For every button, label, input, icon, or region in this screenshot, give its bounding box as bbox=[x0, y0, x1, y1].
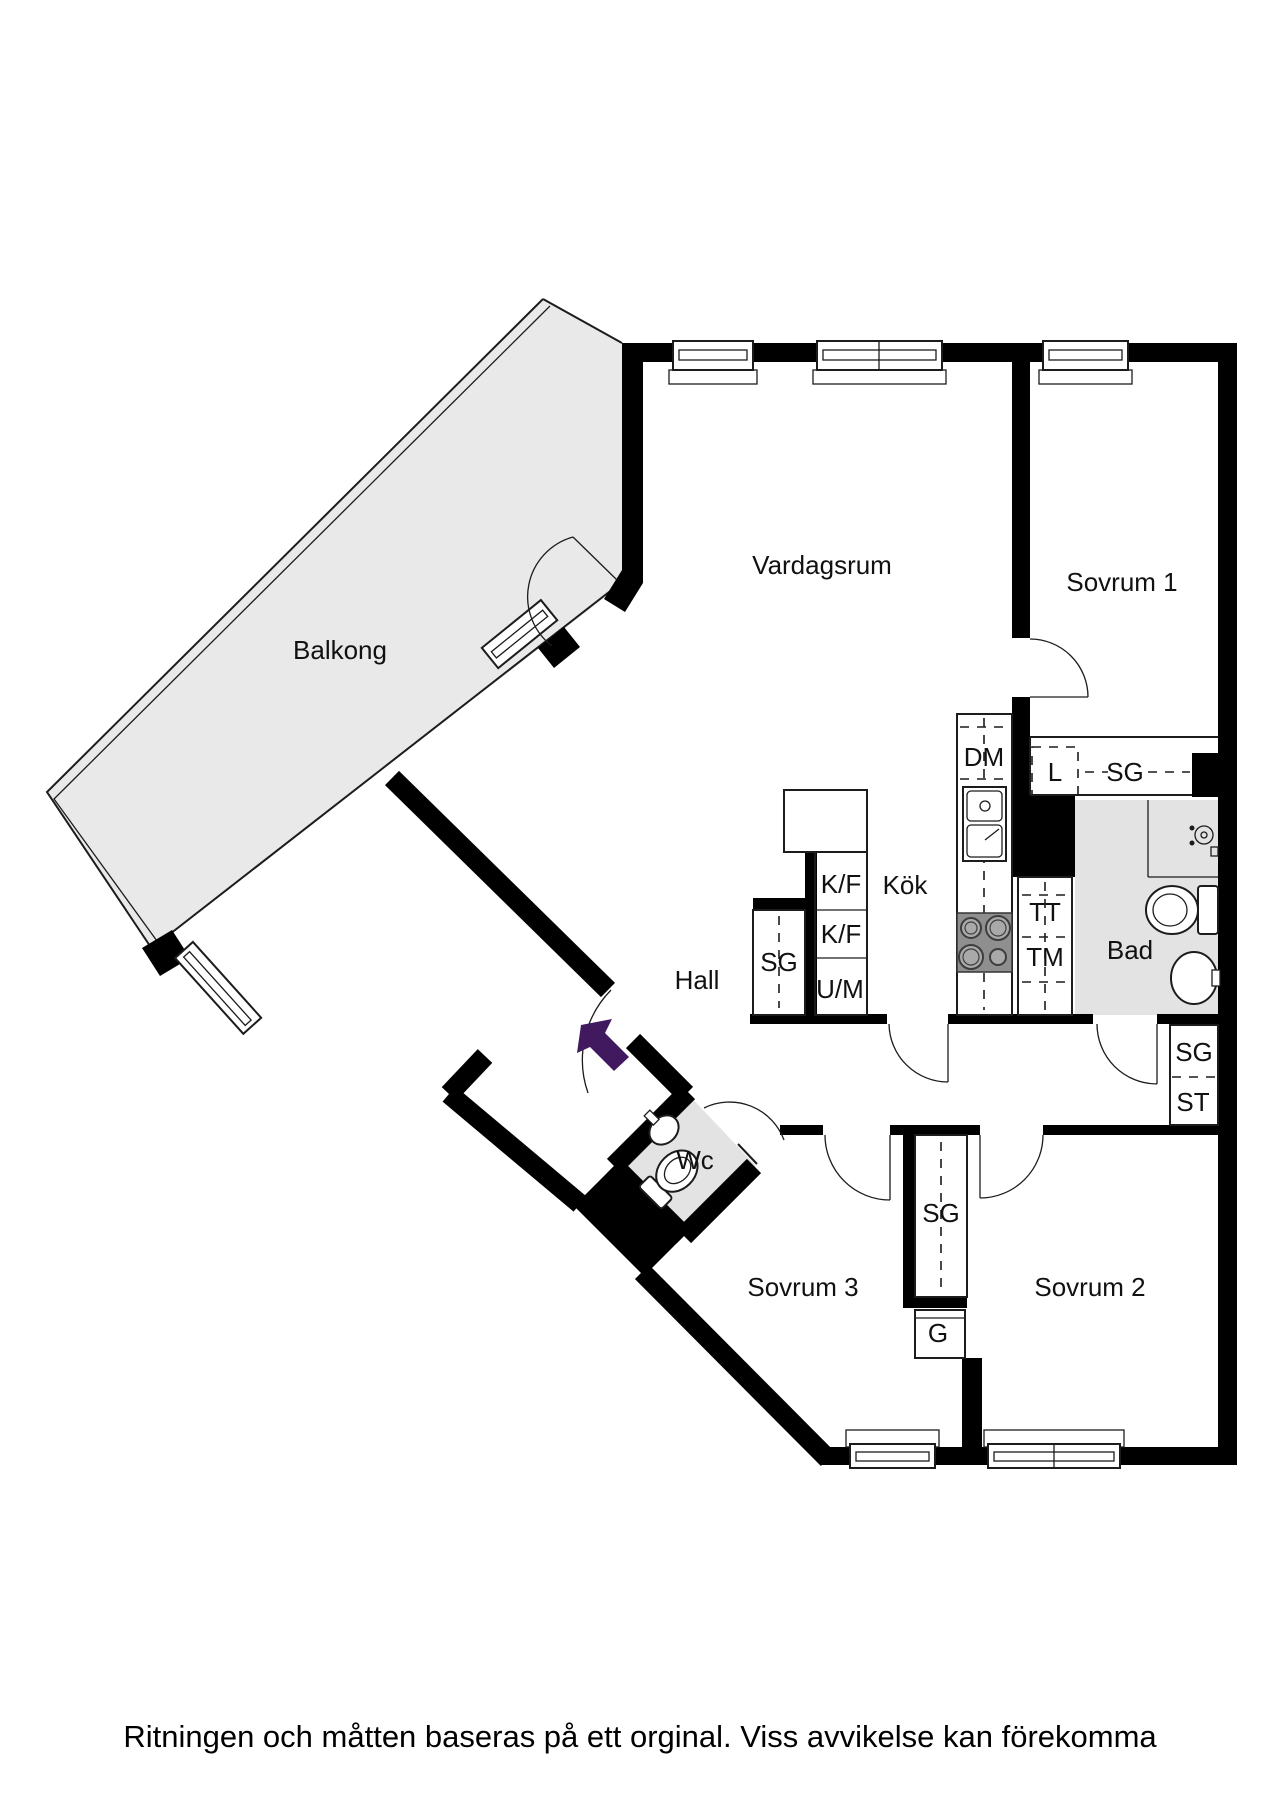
label-sg-bedrooms: SG bbox=[922, 1198, 960, 1228]
kitchen-sink bbox=[963, 787, 1006, 861]
window-bottom-bedroom3 bbox=[846, 1430, 939, 1468]
label-kf1: K/F bbox=[821, 869, 861, 899]
label-sg-top: SG bbox=[1106, 757, 1144, 787]
room-label-bedroom1: Sovrum 1 bbox=[1066, 567, 1177, 597]
label-g: G bbox=[928, 1318, 948, 1348]
label-tm: TM bbox=[1026, 942, 1064, 972]
room-label-living: Vardagsrum bbox=[752, 550, 892, 580]
disclaimer-text: Ritningen och måtten baseras på ett orgi… bbox=[123, 1719, 1157, 1754]
label-st: ST bbox=[1176, 1087, 1209, 1117]
room-label-bedroom3: Sovrum 3 bbox=[747, 1272, 858, 1302]
floorplan-page: Balkong Vardagsrum Sovrum 1 Kök Hall Bad… bbox=[0, 0, 1280, 1810]
label-um: U/M bbox=[816, 974, 864, 1004]
label-tt: TT bbox=[1029, 897, 1061, 927]
label-dm: DM bbox=[964, 742, 1004, 772]
door-kitchen bbox=[889, 1024, 948, 1082]
label-sg-hall: SG bbox=[760, 947, 798, 977]
window-balcony-south bbox=[175, 942, 261, 1034]
window-top-living-2 bbox=[813, 341, 946, 384]
label-kf2: K/F bbox=[821, 919, 861, 949]
window-top-living-1 bbox=[669, 341, 757, 384]
door-bedroom3 bbox=[825, 1135, 890, 1200]
toilet-bath bbox=[1146, 886, 1218, 934]
room-label-bath: Bad bbox=[1107, 935, 1153, 965]
floorplan-canvas: Balkong Vardagsrum Sovrum 1 Kök Hall Bad… bbox=[0, 0, 1280, 1810]
label-sg-corridor: SG bbox=[1175, 1037, 1213, 1067]
label-l: L bbox=[1048, 757, 1062, 787]
room-label-hall: Hall bbox=[675, 965, 720, 995]
stove bbox=[957, 913, 1012, 972]
room-label-wc: Wc bbox=[676, 1145, 714, 1175]
window-top-bedroom1 bbox=[1039, 341, 1132, 384]
entrance-arrow bbox=[577, 1019, 629, 1071]
door-bathroom bbox=[1097, 1024, 1157, 1084]
door-bedroom2 bbox=[980, 1135, 1043, 1198]
room-label-balcony: Balkong bbox=[293, 635, 387, 665]
room-label-kitchen: Kök bbox=[883, 870, 929, 900]
door-bedroom1 bbox=[1030, 639, 1088, 697]
window-bottom-bedroom2 bbox=[984, 1430, 1124, 1468]
room-label-bedroom2: Sovrum 2 bbox=[1034, 1272, 1145, 1302]
